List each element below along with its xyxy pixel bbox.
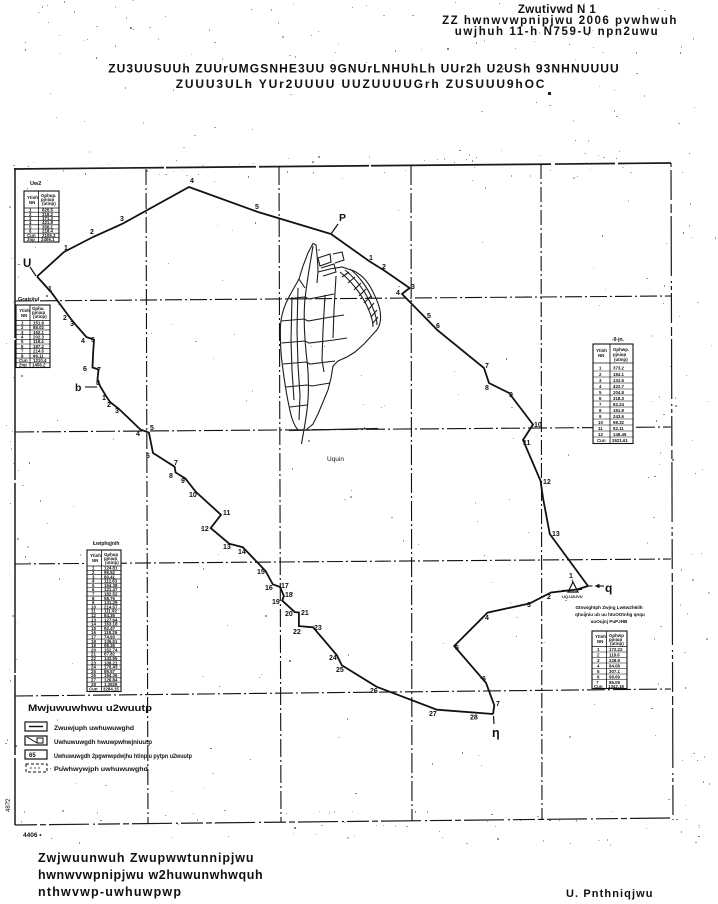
svg-text:19: 19 bbox=[272, 599, 280, 606]
svg-text:4: 4 bbox=[136, 431, 140, 438]
svg-text:10: 10 bbox=[534, 422, 542, 429]
svg-text:3: 3 bbox=[120, 216, 124, 223]
svg-text:q: q bbox=[605, 581, 612, 595]
svg-text:Gratrijul: Gratrijul bbox=[18, 297, 40, 303]
svg-text:15: 15 bbox=[257, 569, 265, 576]
svg-text:23: 23 bbox=[314, 625, 322, 632]
svg-text:ZU3UUSUUh ZUUrUMGSNHE3UU 9GNUr: ZU3UUSUUh ZUUrUMGSNHE3UU 9GNUrLNHUhLh UU… bbox=[108, 62, 620, 76]
svg-text:172.22: 172.22 bbox=[609, 647, 623, 652]
svg-text:11: 11 bbox=[523, 440, 531, 447]
svg-text:204.8: 204.8 bbox=[613, 390, 625, 395]
svg-text:4: 4 bbox=[81, 338, 85, 345]
svg-text:2: 2 bbox=[547, 594, 551, 601]
svg-text:12: 12 bbox=[598, 432, 603, 437]
svg-text:5: 5 bbox=[150, 425, 154, 432]
svg-text:NN: NN bbox=[598, 353, 604, 358]
svg-text:1: 1 bbox=[102, 395, 106, 402]
svg-text:14: 14 bbox=[238, 549, 246, 556]
svg-text:3: 3 bbox=[411, 284, 415, 291]
svg-text:98.32: 98.32 bbox=[613, 420, 625, 425]
svg-text:62.24: 62.24 bbox=[613, 402, 625, 407]
svg-text:8: 8 bbox=[96, 380, 100, 387]
svg-text:228.9: 228.9 bbox=[609, 658, 621, 663]
svg-text:243.6: 243.6 bbox=[613, 414, 625, 419]
svg-text:1: 1 bbox=[64, 245, 68, 252]
svg-text:1: 1 bbox=[48, 286, 52, 293]
svg-text:3: 3 bbox=[527, 602, 531, 609]
svg-text:1456.2: 1456.2 bbox=[32, 363, 46, 368]
svg-text:13: 13 bbox=[552, 531, 560, 538]
svg-text:12: 12 bbox=[201, 526, 209, 533]
svg-text:8: 8 bbox=[485, 385, 489, 392]
svg-text:(utinp): (utinp) bbox=[42, 201, 56, 206]
svg-text:20: 20 bbox=[285, 611, 293, 618]
svg-text:2: 2 bbox=[382, 264, 386, 271]
svg-text:2: 2 bbox=[90, 229, 94, 236]
svg-text:3284.15: 3284.15 bbox=[103, 686, 119, 691]
svg-text:2406.1: 2406.1 bbox=[41, 237, 55, 242]
svg-text:307.1: 307.1 bbox=[609, 669, 621, 674]
svg-text:η: η bbox=[492, 726, 500, 740]
svg-text:(utinp): (utinp) bbox=[33, 314, 47, 319]
svg-text:Uw2: Uw2 bbox=[30, 181, 41, 187]
svg-text:3: 3 bbox=[115, 408, 119, 415]
svg-text:11: 11 bbox=[223, 510, 231, 517]
svg-text:25: 25 bbox=[336, 667, 344, 674]
svg-text:4872: 4872 bbox=[6, 798, 12, 812]
svg-text:52.11: 52.11 bbox=[613, 426, 624, 431]
svg-text:NN: NN bbox=[92, 558, 98, 563]
svg-text:NN: NN bbox=[29, 200, 35, 205]
svg-text:318.3: 318.3 bbox=[613, 396, 625, 401]
svg-text:4: 4 bbox=[485, 615, 489, 622]
svg-text:(utinp): (utinp) bbox=[614, 357, 628, 362]
svg-text:(utinp): (utinp) bbox=[105, 560, 119, 565]
svg-text:b: b bbox=[75, 382, 81, 394]
svg-text:184.1: 184.1 bbox=[613, 372, 625, 377]
svg-text:NN: NN bbox=[21, 313, 27, 318]
svg-text:5: 5 bbox=[427, 313, 431, 320]
svg-text:Łwiphqjnih: Łwiphqjnih bbox=[93, 541, 119, 547]
svg-text:Zwjwuunwuh Zwupwwtunnipjwu: Zwjwuunwuh Zwupwwtunnipjwu bbox=[38, 851, 254, 865]
svg-text:-9-jn.: -9-jn. bbox=[612, 337, 625, 343]
svg-text:7: 7 bbox=[97, 367, 101, 374]
svg-text:12: 12 bbox=[543, 479, 551, 486]
svg-text:18: 18 bbox=[285, 592, 293, 599]
svg-text:422.7: 422.7 bbox=[613, 384, 625, 389]
svg-text:6: 6 bbox=[146, 453, 150, 460]
svg-text:4: 4 bbox=[396, 290, 400, 297]
svg-text:151.9: 151.9 bbox=[613, 408, 625, 413]
svg-text:Cun: Cun bbox=[89, 686, 98, 691]
svg-text:P: P bbox=[339, 212, 346, 224]
svg-text:16: 16 bbox=[265, 585, 273, 592]
svg-text:uuOujnj PuPJHB: uuOujnj PuPJHB bbox=[591, 619, 628, 624]
svg-text:4406 •: 4406 • bbox=[23, 832, 42, 839]
svg-text:24: 24 bbox=[329, 655, 337, 662]
svg-text:7: 7 bbox=[174, 460, 178, 467]
svg-text:U. Pnthniqjwu: U. Pnthniqjwu bbox=[566, 888, 654, 900]
svg-text:qhuijniu ub uu htuOOtnhg qnqu: qhuijniu ub uu htuOOtnhg qnqu bbox=[575, 612, 645, 617]
svg-text:21: 21 bbox=[301, 610, 309, 617]
svg-text:4: 4 bbox=[190, 178, 194, 185]
svg-text:7: 7 bbox=[496, 701, 500, 708]
svg-text:1: 1 bbox=[569, 573, 573, 580]
svg-text:5: 5 bbox=[455, 645, 459, 652]
svg-text:2np: 2np bbox=[19, 363, 27, 368]
svg-text:5: 5 bbox=[91, 337, 95, 344]
svg-text:Uwhuwuwgdh hwuwpwhwjniuutp: Uwhuwuwgdh hwuwpwhwjniuutp bbox=[54, 739, 152, 746]
svg-text:6: 6 bbox=[83, 366, 87, 373]
svg-text:373.2: 373.2 bbox=[613, 366, 625, 371]
svg-text:11: 11 bbox=[598, 426, 603, 431]
svg-text:1342.18: 1342.18 bbox=[608, 684, 624, 689]
svg-text:1: 1 bbox=[369, 255, 373, 262]
svg-text:5: 5 bbox=[255, 204, 259, 211]
svg-text:8: 8 bbox=[169, 473, 173, 480]
svg-text:NN: NN bbox=[597, 639, 603, 644]
svg-text:65: 65 bbox=[29, 753, 36, 759]
svg-text:nthwvwp-uwhuwpwp: nthwvwp-uwhuwpwp bbox=[38, 885, 182, 899]
svg-text:(utinp): (utinp) bbox=[610, 641, 624, 646]
svg-text:Cun: Cun bbox=[597, 438, 606, 443]
svg-text:2: 2 bbox=[63, 315, 67, 322]
svg-text:27: 27 bbox=[429, 711, 437, 718]
svg-text:3: 3 bbox=[70, 321, 74, 328]
svg-text:28: 28 bbox=[470, 715, 478, 722]
svg-text:U: U bbox=[23, 258, 31, 270]
svg-text:Puwhwywjph uwhuwuwghd: Puwhwywjph uwhuwuwghd bbox=[54, 766, 148, 773]
svg-text:Uwhuwuwgdh 2pgwnwpdwjhu htinp: Uwhuwuwgdh 2pgwnwpdwjhu htinp u pytpn u2… bbox=[54, 753, 192, 760]
svg-text:22: 22 bbox=[293, 629, 301, 636]
svg-text:146.45: 146.45 bbox=[613, 432, 627, 437]
svg-text:ZUUU3ULh YUr2UUUU UUZUUUUGrh: ZUUU3ULh YUr2UUUU UUZUUUUGrh ZUSUUU9hOC bbox=[176, 77, 547, 91]
svg-text:UQ.U2UVU: UQ.U2UVU bbox=[562, 594, 583, 599]
svg-text:118.6: 118.6 bbox=[609, 653, 620, 658]
svg-text:7: 7 bbox=[485, 363, 489, 370]
svg-text:hwnwvwpnipjwu w2huwunwhwquh: hwnwvwpnipjwu w2huwunwhwquh bbox=[38, 868, 263, 882]
svg-text:10: 10 bbox=[598, 420, 603, 425]
svg-text:Gtnwightph Zwjng Lw6w2h6ilh: Gtnwightph Zwjng Lw6w2h6ilh bbox=[575, 605, 642, 610]
svg-text:2621.61: 2621.61 bbox=[612, 438, 628, 443]
svg-text:26: 26 bbox=[370, 688, 378, 695]
svg-text:Zwuwjuph uwhuwuwghd: Zwuwjuph uwhuwuwghd bbox=[54, 725, 134, 732]
svg-text:2: 2 bbox=[107, 402, 111, 409]
svg-text:2np: 2np bbox=[27, 237, 35, 242]
svg-text:17: 17 bbox=[281, 583, 289, 590]
svg-text:6: 6 bbox=[482, 676, 486, 683]
svg-text:10: 10 bbox=[189, 492, 197, 499]
svg-text:98.69: 98.69 bbox=[609, 675, 621, 680]
svg-text:Uquin: Uquin bbox=[327, 456, 344, 463]
svg-text:Mwjuwuwhwu u2wuutp: Mwjuwuwhwu u2wuutp bbox=[28, 703, 152, 714]
svg-text:9: 9 bbox=[509, 392, 513, 399]
svg-text:Cun: Cun bbox=[594, 684, 603, 689]
svg-text:6: 6 bbox=[436, 323, 440, 330]
svg-text:13: 13 bbox=[223, 544, 231, 551]
svg-text:131.5: 131.5 bbox=[613, 378, 625, 383]
svg-text:84.08: 84.08 bbox=[609, 664, 621, 669]
svg-text:9: 9 bbox=[181, 478, 185, 485]
svg-text:uwjhuh 11-h N759-U npn2uwu: uwjhuh 11-h N759-U npn2uwu bbox=[455, 26, 660, 38]
